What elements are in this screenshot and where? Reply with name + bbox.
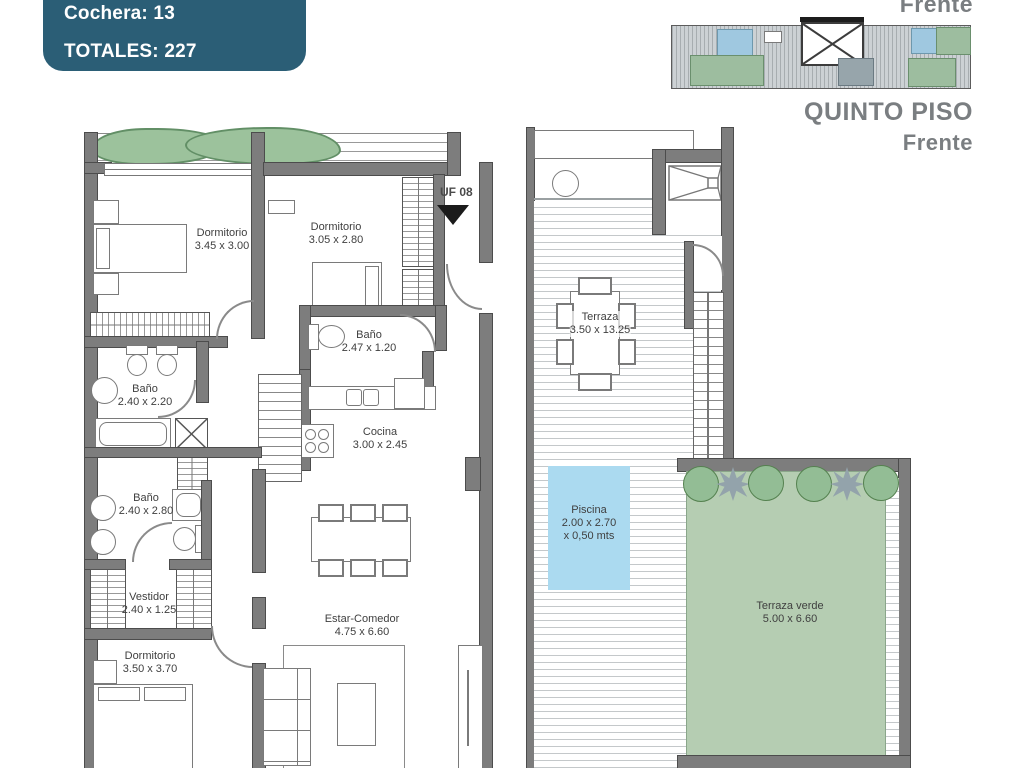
room-name: Terraza — [570, 311, 631, 324]
shrub-icon — [796, 466, 832, 502]
pillow — [144, 687, 186, 701]
room-label-dormitorio-1: Dormitorio 3.45 x 3.00 — [195, 227, 249, 253]
chair — [578, 373, 612, 391]
pillow — [96, 228, 110, 269]
bathtub — [172, 489, 205, 521]
room-dims: 2.40 x 2.80 — [119, 505, 173, 518]
shrub-icon — [683, 466, 719, 502]
wall — [448, 133, 460, 175]
sink — [363, 389, 379, 406]
sofa — [263, 668, 311, 766]
shaft — [175, 418, 208, 450]
room-name: Piscina — [562, 504, 616, 517]
wall — [678, 756, 910, 768]
room-dims: 3.05 x 2.80 — [309, 234, 363, 247]
washbasin — [91, 377, 118, 404]
room-name: Baño — [119, 492, 173, 505]
room-label-terraza-verde: Terraza verde 5.00 x 6.60 — [756, 600, 823, 626]
stairs — [258, 374, 302, 482]
totales-label: TOTALES: 227 — [64, 41, 197, 63]
closet — [90, 312, 210, 339]
wall — [466, 458, 480, 490]
thumb-green-patch — [690, 55, 764, 86]
stairs — [693, 292, 724, 468]
terrace-deck — [884, 478, 899, 756]
chair — [350, 559, 376, 577]
room-label-piscina: Piscina 2.00 x 2.70 x 0,50 mts — [562, 504, 616, 543]
wall — [197, 342, 208, 402]
closet — [90, 569, 126, 631]
front-label-top: Frente — [900, 0, 973, 18]
room-name: Terraza verde — [756, 600, 823, 613]
room-name: Estar-Comedor — [325, 613, 400, 626]
shelf — [268, 200, 295, 214]
stair-funnel-icon — [668, 165, 722, 201]
stove-icon — [300, 424, 334, 458]
room-name: Dormitorio — [195, 227, 249, 240]
chair — [382, 559, 408, 577]
room-dims: 3.45 x 3.00 — [195, 240, 249, 253]
washbasin — [90, 529, 116, 555]
room-name: Vestidor — [122, 591, 176, 604]
door-swing — [132, 522, 172, 562]
wall — [85, 560, 125, 569]
fridge — [394, 378, 425, 409]
room-dims: 2.00 x 2.70 — [562, 517, 616, 530]
room-depth: x 0,50 mts — [562, 530, 616, 543]
cochera-label: Cochera: 13 — [64, 3, 175, 25]
window — [104, 163, 256, 176]
wall — [170, 560, 211, 569]
thumb-pool-patch — [717, 29, 753, 57]
unit-label: UF 08 — [440, 185, 473, 199]
thumb-window — [764, 31, 782, 43]
shrub-icon — [863, 465, 899, 501]
room-label-estar-comedor: Estar-Comedor 4.75 x 6.60 — [325, 613, 400, 639]
wall — [685, 242, 693, 328]
wall — [85, 629, 211, 639]
thumb-pool-patch-2 — [911, 28, 938, 54]
wall — [527, 128, 534, 768]
wall — [85, 448, 261, 457]
wall — [202, 481, 211, 560]
room-label-bano-3: Baño 2.40 x 2.80 — [119, 492, 173, 518]
room-dims: 3.50 x 13.25 — [570, 324, 631, 337]
pillow — [365, 266, 379, 306]
door-swing — [211, 626, 253, 668]
room-dims: 2.40 x 1.25 — [122, 604, 176, 617]
wall — [300, 306, 446, 316]
thumb-gray-patch — [838, 58, 874, 86]
dining-table — [311, 517, 411, 562]
room-label-bano-2: Baño 2.40 x 2.20 — [118, 383, 172, 409]
round-table — [552, 170, 579, 197]
room-dims: 2.47 x 1.20 — [342, 342, 396, 355]
room-dims: 3.00 x 2.45 — [353, 439, 407, 452]
nightstand — [93, 273, 119, 295]
wall — [480, 163, 492, 262]
bed — [93, 224, 187, 273]
room-label-terraza: Terraza 3.50 x 13.25 — [570, 311, 631, 337]
wall — [264, 163, 460, 175]
nightstand — [93, 660, 117, 684]
sink — [346, 389, 362, 406]
thumb-green-patch-3 — [908, 58, 956, 87]
wall — [899, 459, 910, 768]
wall — [253, 598, 265, 628]
room-dims: 4.75 x 6.60 — [325, 626, 400, 639]
shaft-x-icon — [176, 419, 207, 449]
chair — [382, 504, 408, 522]
wall — [436, 306, 446, 350]
coffee-table — [337, 683, 376, 746]
room-name: Baño — [342, 329, 396, 342]
door-swing — [446, 264, 482, 310]
wall — [653, 150, 665, 234]
summary-card: Cochera: 13 TOTALES: 227 — [43, 0, 306, 71]
chair — [318, 559, 344, 577]
room-label-dormitorio-2: Dormitorio 3.05 x 2.80 — [309, 221, 363, 247]
front-label-bottom: Frente — [903, 130, 973, 156]
room-dims: 5.00 x 6.60 — [756, 613, 823, 626]
chair — [556, 339, 574, 365]
bathtub — [95, 418, 171, 450]
wall — [253, 470, 265, 572]
washbasin — [90, 495, 116, 521]
room-dims: 2.40 x 2.20 — [118, 396, 172, 409]
room-name: Baño — [118, 383, 172, 396]
chair — [318, 504, 344, 522]
room-label-dormitorio-3: Dormitorio 3.50 x 3.70 — [123, 650, 177, 676]
shrub-icon — [748, 465, 784, 501]
room-dims: 3.50 x 3.70 — [123, 663, 177, 676]
entry-arrow-icon — [437, 205, 469, 225]
chair — [618, 339, 636, 365]
thumb-green-patch-2 — [936, 27, 971, 55]
bed — [312, 262, 382, 310]
wall — [653, 150, 733, 162]
nightstand — [93, 200, 119, 224]
tv-console — [458, 645, 483, 768]
room-label-bano-1: Baño 2.47 x 1.20 — [342, 329, 396, 355]
room-name: Dormitorio — [309, 221, 363, 234]
bed — [93, 684, 193, 768]
door-swing — [216, 300, 254, 339]
door-swing — [400, 314, 436, 352]
room-name: Dormitorio — [123, 650, 177, 663]
room-name: Cocina — [353, 426, 407, 439]
room-label-cocina: Cocina 3.00 x 2.45 — [353, 426, 407, 452]
pillow — [98, 687, 140, 701]
chair — [350, 504, 376, 522]
chair — [578, 277, 612, 295]
room-label-vestidor: Vestidor 2.40 x 1.25 — [122, 591, 176, 617]
closet — [176, 569, 212, 631]
floorplan-page: Cochera: 13 TOTALES: 227 Frente QUINTO P… — [0, 0, 1024, 768]
floor-title: QUINTO PISO — [804, 98, 973, 127]
closet — [402, 177, 436, 267]
